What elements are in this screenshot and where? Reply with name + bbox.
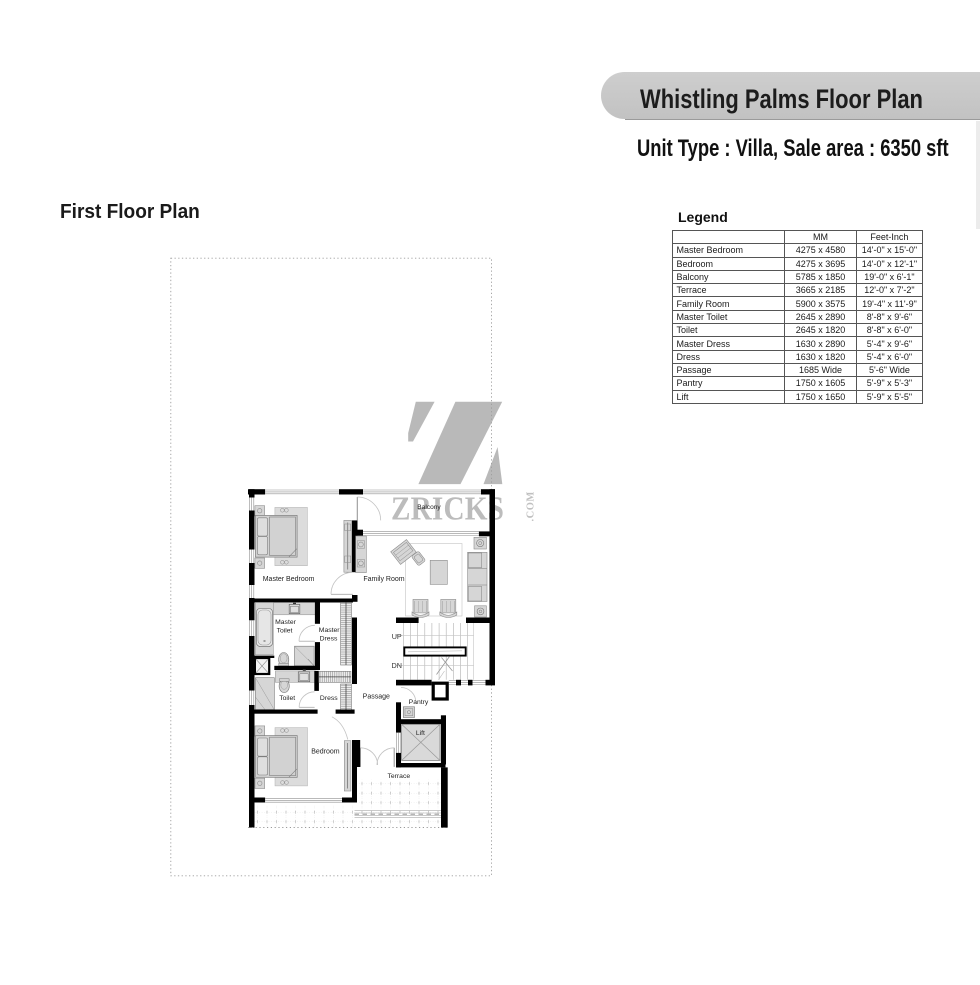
svg-text:Dress: Dress (320, 695, 338, 702)
svg-text:Terrace: Terrace (387, 773, 410, 780)
svg-text:UP: UP (392, 632, 402, 641)
svg-text:Dress: Dress (320, 635, 338, 642)
svg-text:Passage: Passage (363, 694, 390, 701)
svg-text:Balcony: Balcony (417, 504, 441, 511)
svg-text:Bedroom: Bedroom (311, 748, 340, 755)
svg-text:DN: DN (392, 661, 402, 670)
svg-text:Pantry: Pantry (409, 699, 429, 706)
svg-text:Master Bedroom: Master Bedroom (263, 576, 315, 583)
svg-text:Family Room: Family Room (363, 576, 404, 583)
svg-text:Toilet: Toilet (277, 627, 293, 634)
svg-text:Master: Master (319, 627, 341, 634)
svg-text:Master: Master (275, 619, 297, 626)
svg-text:Toilet: Toilet (279, 695, 295, 702)
svg-text:Lift: Lift (416, 730, 425, 737)
svg-text:.COM: .COM (526, 491, 537, 521)
svg-text:ZRICKS: ZRICKS (391, 489, 504, 527)
